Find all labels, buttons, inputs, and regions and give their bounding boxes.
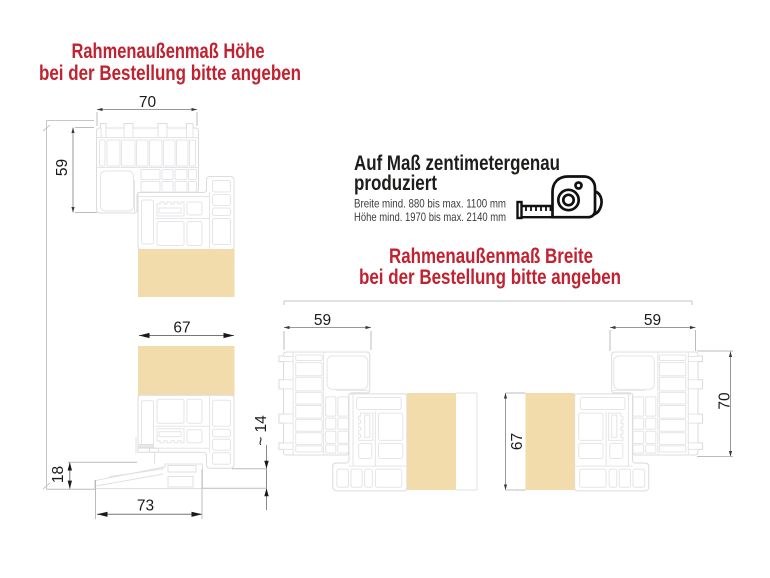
svg-text:Rahmenaußenmaß Höhe: Rahmenaußenmaß Höhe [72,40,265,63]
svg-text:73: 73 [137,498,154,515]
svg-text:Breite mind. 880 bis max. 1100: Breite mind. 880 bis max. 1100 mm [354,197,506,211]
svg-text:bei der Bestellung bitte angeb: bei der Bestellung bitte angeben [359,266,621,289]
svg-text:59: 59 [644,312,661,329]
svg-text:70: 70 [139,94,157,111]
svg-text:67: 67 [173,320,190,337]
svg-text:59: 59 [314,312,331,329]
svg-text:Höhe mind. 1970 bis max. 2140: Höhe mind. 1970 bis max. 2140 mm [354,210,506,224]
svg-text:Rahmenaußenmaß Breite: Rahmenaußenmaß Breite [389,245,593,268]
svg-text:59: 59 [54,159,71,176]
svg-text:bei der Bestellung bitte angeb: bei der Bestellung bitte angeben [39,62,301,85]
svg-text:~ 14: ~ 14 [253,415,270,446]
svg-text:67: 67 [509,433,526,450]
svg-text:18: 18 [50,466,67,483]
svg-text:produziert: produziert [354,172,437,195]
